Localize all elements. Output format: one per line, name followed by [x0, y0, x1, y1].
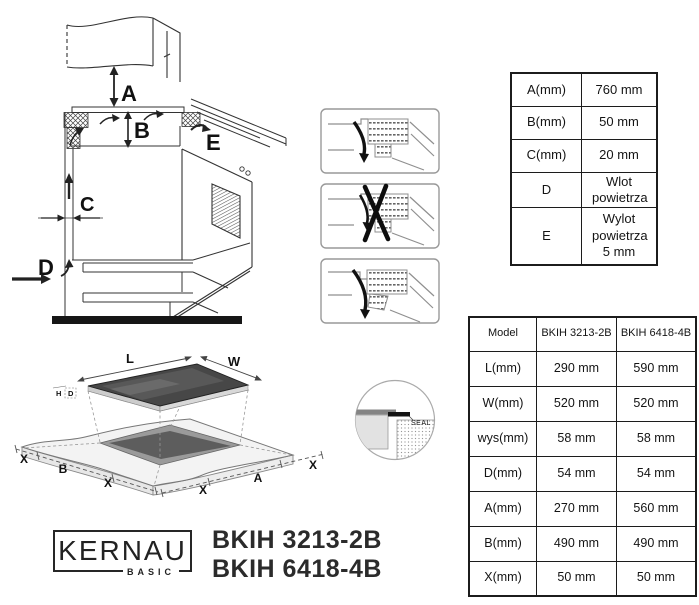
table-header-row: Model BKIH 3213-2B BKIH 6418-4B — [469, 317, 696, 351]
dim-label: B(mm) — [469, 526, 537, 561]
spec-label: E — [511, 208, 582, 265]
kernau-logo: KERNAU BASIC — [53, 530, 192, 572]
table-row: C(mm) 20 mm — [511, 139, 657, 172]
installation-clearance-diagram: A B — [8, 8, 308, 338]
hob-unit-block — [367, 270, 407, 294]
dim-label: A(mm) — [469, 491, 537, 526]
label-x-left: X — [20, 452, 28, 466]
spec-value: 20 mm — [582, 139, 658, 172]
label-d: D — [38, 255, 54, 280]
junction-box — [368, 294, 388, 310]
table-row: E Wylot powietrza 5 mm — [511, 208, 657, 265]
label-b: B — [134, 118, 150, 143]
dim-value: 54 mm — [617, 456, 697, 491]
edge-height-dims: H D — [53, 386, 76, 398]
spec-label: A(mm) — [511, 73, 582, 106]
dim-value: 270 mm — [537, 491, 617, 526]
dim-label: wys(mm) — [469, 421, 537, 456]
hob-top — [88, 364, 248, 411]
dim-value: 58 mm — [537, 421, 617, 456]
seal-detail-diagram: SEAL — [348, 378, 444, 462]
label-a: A — [121, 81, 137, 106]
label-x-right: X — [309, 458, 317, 472]
seal-label: SEAL — [411, 420, 431, 427]
dim-e-arrow: E — [191, 124, 221, 155]
dim-label: D(mm) — [469, 456, 537, 491]
worktop-cutout-diagram: L W H D X B X X A X — [10, 343, 340, 511]
airflow-correct-diagram-1 — [320, 108, 440, 174]
dim-value: 490 mm — [537, 526, 617, 561]
column-header: Model — [469, 317, 537, 351]
label-d-small: D — [68, 389, 74, 398]
dim-value: 490 mm — [617, 526, 697, 561]
dim-a-arrow: A — [110, 66, 138, 107]
table-row: L(mm) 290 mm 590 mm — [469, 351, 696, 386]
spec-value: Wylot powietrza 5 mm — [582, 208, 658, 265]
hob-unit-block — [368, 119, 408, 144]
counter-body — [352, 415, 388, 449]
dim-value: 520 mm — [617, 386, 697, 421]
junction-box — [375, 144, 391, 157]
floor-line — [52, 316, 242, 324]
label-l: L — [126, 351, 134, 366]
dim-value: 560 mm — [617, 491, 697, 526]
model-dimensions-table: Model BKIH 3213-2B BKIH 6418-4B L(mm) 29… — [468, 316, 697, 597]
dim-value: 290 mm — [537, 351, 617, 386]
label-c: C — [80, 194, 94, 216]
table-row: W(mm) 520 mm 520 mm — [469, 386, 696, 421]
dim-b-arrow: B — [124, 111, 150, 148]
label-b-cutout: B — [59, 462, 68, 476]
spec-label: D — [511, 172, 582, 208]
label-h: H — [56, 389, 61, 398]
table-row: wys(mm) 58 mm 58 mm — [469, 421, 696, 456]
table-row: D(mm) 54 mm 54 mm — [469, 456, 696, 491]
dim-value: 54 mm — [537, 456, 617, 491]
dim-label: W(mm) — [469, 386, 537, 421]
table-row: A(mm) 270 mm 560 mm — [469, 491, 696, 526]
column-header: BKIH 3213-2B — [537, 317, 617, 351]
dim-label: L(mm) — [469, 351, 537, 386]
dim-c-arrow: C — [38, 194, 103, 222]
dim-value: 50 mm — [617, 561, 697, 596]
table-row: D Wlot powietrza — [511, 172, 657, 208]
clearance-spec-table: A(mm) 760 mm B(mm) 50 mm C(mm) 20 mm D W… — [510, 72, 658, 266]
label-x-front-right: X — [199, 483, 207, 497]
model-number-line2: BKIH 6418-4B — [212, 555, 382, 584]
model-numbers: BKIH 3213-2B BKIH 6418-4B — [212, 526, 382, 584]
airflow-correct-diagram-2 — [320, 258, 440, 324]
dim-d-arrow: D — [12, 255, 74, 284]
dim-value: 520 mm — [537, 386, 617, 421]
label-e: E — [206, 130, 221, 155]
hood-outline — [67, 17, 180, 82]
spec-value: 760 mm — [582, 73, 658, 106]
label-x-front-left: X — [104, 476, 112, 490]
airflow-incorrect-diagram — [320, 183, 440, 249]
table-row: X(mm) 50 mm 50 mm — [469, 561, 696, 596]
oven-window — [212, 184, 240, 238]
dim-value: 50 mm — [537, 561, 617, 596]
label-w: W — [228, 354, 241, 369]
model-number-line1: BKIH 3213-2B — [212, 526, 382, 555]
dim-label: X(mm) — [469, 561, 537, 596]
table-row: B(mm) 50 mm — [511, 106, 657, 139]
label-a-cutout: A — [254, 471, 263, 485]
logo-subtext: BASIC — [123, 567, 179, 577]
logo-text: KERNAU — [55, 532, 190, 570]
spec-value: Wlot powietrza — [582, 172, 658, 208]
spec-label: C(mm) — [511, 139, 582, 172]
dim-value: 58 mm — [617, 421, 697, 456]
column-header: BKIH 6418-4B — [617, 317, 697, 351]
spec-value: 50 mm — [582, 106, 658, 139]
spec-label: B(mm) — [511, 106, 582, 139]
manual-page: A B — [0, 0, 699, 605]
dim-value: 590 mm — [617, 351, 697, 386]
table-row: A(mm) 760 mm — [511, 73, 657, 106]
seal-strip — [388, 412, 410, 417]
table-row: B(mm) 490 mm 490 mm — [469, 526, 696, 561]
cabinet-base — [72, 243, 250, 316]
